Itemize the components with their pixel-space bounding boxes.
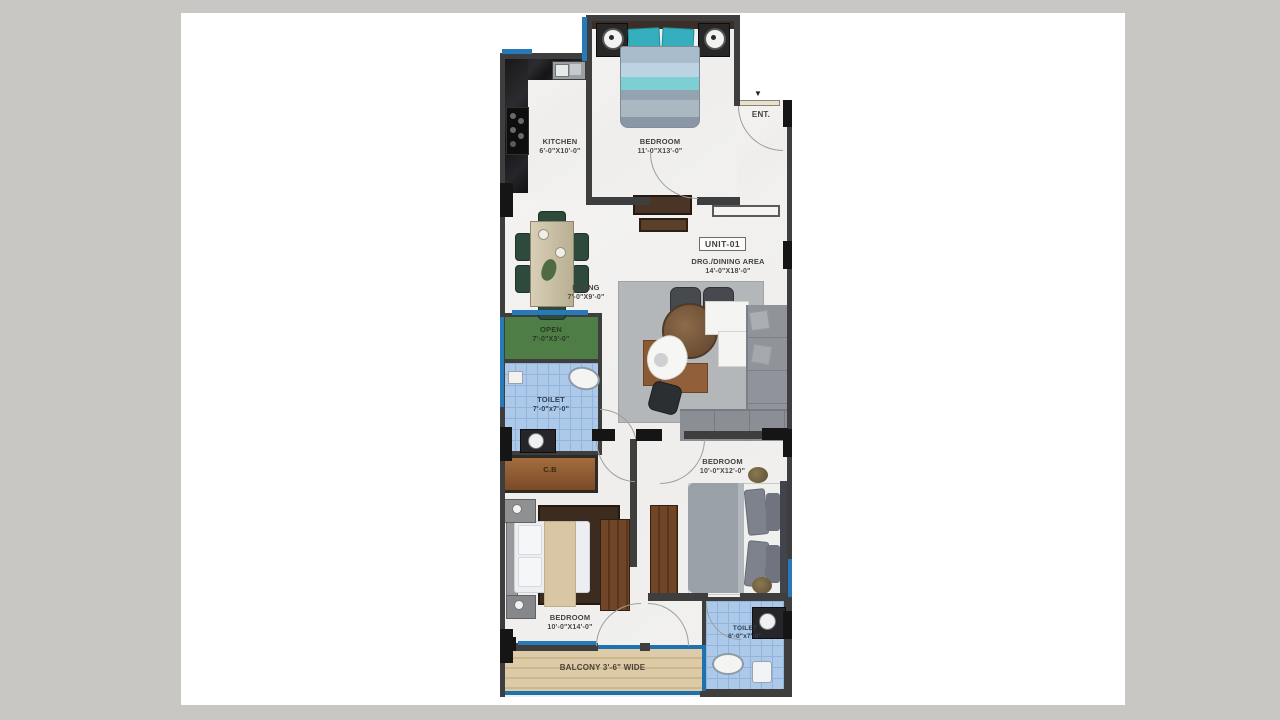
window-open-north [512,310,588,315]
column-ent-ne [783,100,792,127]
stove-burners [510,113,516,119]
bed3-pillow-4 [766,545,780,583]
window-west-open-toilet [500,317,504,407]
sofa-pillow-1 [749,310,770,331]
wall-bedroom-right-south-a [648,593,708,601]
entrance-shoe-shelf [712,205,780,217]
bed3-duvet [688,483,740,593]
bed3-headboard [780,481,787,595]
column-midwall-2 [636,429,662,441]
toilet-mid-dims: 7'-0"x7'-0" [510,405,592,414]
sofa-pillow-2 [750,343,772,365]
dining-label: DINING 7'-0"X9'-0" [555,283,617,302]
bedroom-top-dims: 11'-0"X13'-0" [605,147,715,156]
living-accent-chair-seat [654,353,668,367]
bed2-nightstand-top-item [512,504,522,514]
window-kitchen-north [502,49,532,54]
bedroom-bottom-dims: 10'-0"X14'-0" [525,623,615,632]
bedroom-right-dims: 10'-0"X12'-0" [665,467,780,476]
column-west-mid [500,427,512,461]
open-area-name: OPEN [510,325,592,335]
toilet-bottom-label: TOILET 6'-0"x7'-0" [705,625,785,642]
drg-dining-dims: 14'-0"X18'-0" [672,267,784,276]
kitchen-sink-drain [570,64,581,75]
toilet-mid-label: TOILET 7'-0"x7'-0" [510,395,592,414]
column-midwall-3 [762,428,788,440]
bed2-throw [544,521,576,607]
bed1-lamp-right-dot [711,35,716,40]
column-balcony-nw [500,637,516,651]
bed2-pillow-2 [518,557,542,587]
toilet-mid-name: TOILET [510,395,592,405]
wall-exterior-east [787,100,792,697]
floor-plan: ▼ [500,15,792,700]
kitchen-name: KITCHEN [520,137,600,147]
open-area-label: OPEN 7'-0"X3'-0" [510,325,592,344]
bedroom-top-name: BEDROOM [605,137,715,147]
dining-chair-right1 [572,233,589,261]
bed3-pillow-3 [766,493,780,531]
toilet-bottom-dims: 6'-0"x7'-0" [705,633,785,641]
drg-dining-name: DRG./DINING AREA [672,257,784,267]
column-kitchen-sw [500,183,513,217]
bedroom-right-name: BEDROOM [665,457,780,467]
wall-bedroom-top-south-a [586,197,650,205]
dining-plate-2 [555,247,566,258]
bed1-dresser-shelf [639,218,688,232]
entrance-arrow-icon: ▼ [754,89,762,98]
wall-bedroom-right-south-b [740,593,792,601]
toilet-bottom-shower [752,661,772,683]
bed2-pillow-1 [518,525,542,555]
wall-bedroom-top-east [734,15,740,106]
living-console-white-b [718,331,749,367]
window-balcony-north [518,641,596,645]
living-console-white-a [705,301,749,335]
toilet-bottom-wc [712,653,744,675]
open-area-dims: 7'-0"X3'-0" [510,335,592,344]
bed1-duvet [620,46,700,128]
screenshot-stage: ▼ [0,0,1280,720]
bedroom-bottom-name: BEDROOM [525,613,615,623]
wall-exterior-south-right [700,691,792,697]
cupboard-label: C.B [525,465,575,475]
kitchen-sink-bowl [555,64,569,77]
wardrobe-bedroom-bottom [600,519,630,611]
toilet-mid-basin [528,433,544,449]
dining-dims: 7'-0"X9'-0" [555,293,617,302]
bedroom-right-label: BEDROOM 10'-0"X12'-0" [665,457,780,476]
bedroom-bottom-label: BEDROOM 10'-0"X14'-0" [525,613,615,632]
toilet-bottom-name: TOILET [705,625,785,633]
wall-bedroom-top-south-b [697,197,740,205]
toilet-mid-roll [508,371,523,384]
wardrobe-bedroom-right [650,505,678,601]
drg-dining-label: DRG./DINING AREA 14'-0"X18'-0" [672,257,784,276]
bedroom-top-label: BEDROOM 11'-0"X13'-0" [605,137,715,156]
dining-name: DINING [555,283,617,293]
kitchen-label: KITCHEN 6'-0"X10'-0" [520,137,600,156]
window-east-bedroom-right [788,559,792,597]
wall-bedroom-top-north [586,15,740,21]
bed2-nightstand-bottom-item [514,600,524,610]
kitchen-dims: 6'-0"X10'-0" [520,147,600,156]
entrance-label: ENT. [740,110,782,120]
bed1-lamp-left-dot [609,35,614,40]
unit-label: UNIT-01 [699,237,746,251]
column-east-living [783,241,792,269]
dining-plate-1 [538,229,549,240]
column-midwall-1 [592,429,615,441]
bed3-fold [738,483,744,593]
bed3-plant-bottom [752,577,772,594]
balcony-label: BALCONY 3'-6" WIDE [520,663,685,673]
window-bedroom-top-west [582,17,587,61]
